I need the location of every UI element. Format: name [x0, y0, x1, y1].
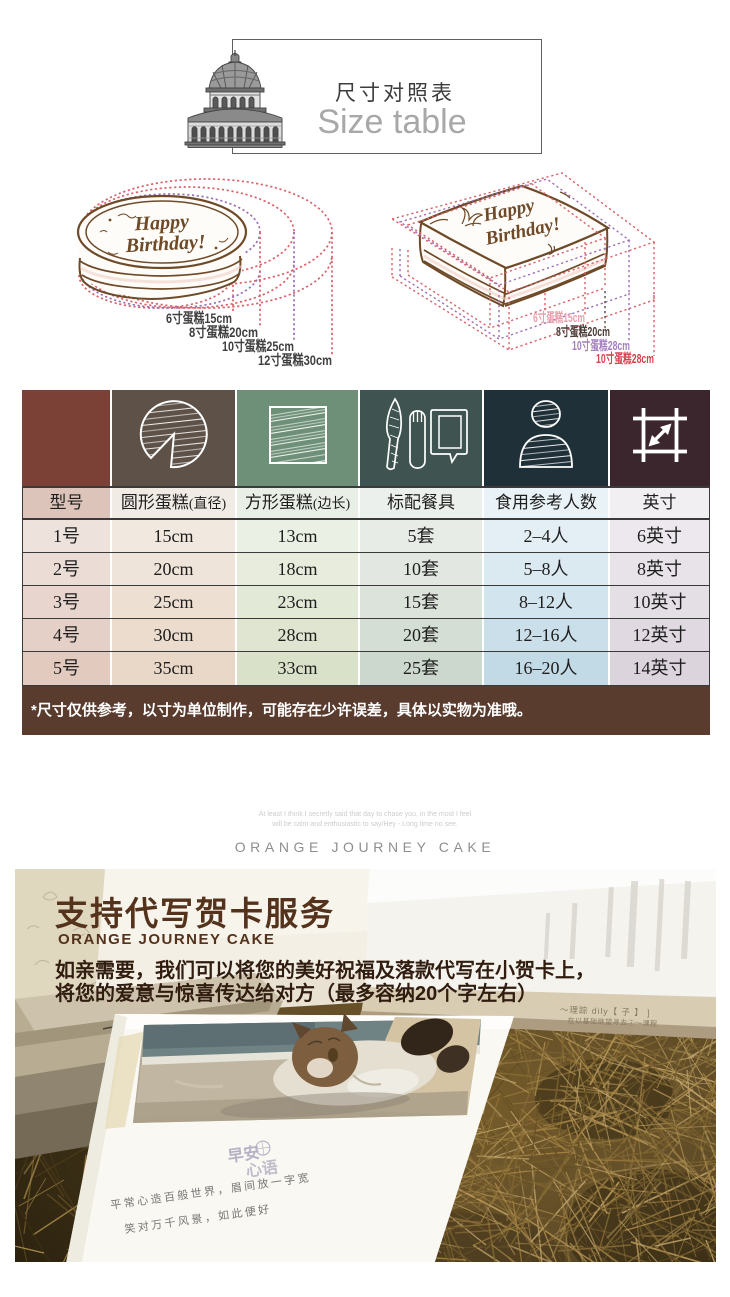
svg-text:8寸蛋糕20cm: 8寸蛋糕20cm — [556, 324, 610, 339]
svg-text:Birthday!: Birthday! — [124, 231, 206, 257]
svg-text:10寸蛋糕28cm: 10寸蛋糕28cm — [596, 351, 654, 366]
svg-text:12寸蛋糕30cm: 12寸蛋糕30cm — [258, 352, 332, 368]
svg-text:6寸蛋糕15cm: 6寸蛋糕15cm — [533, 310, 585, 325]
